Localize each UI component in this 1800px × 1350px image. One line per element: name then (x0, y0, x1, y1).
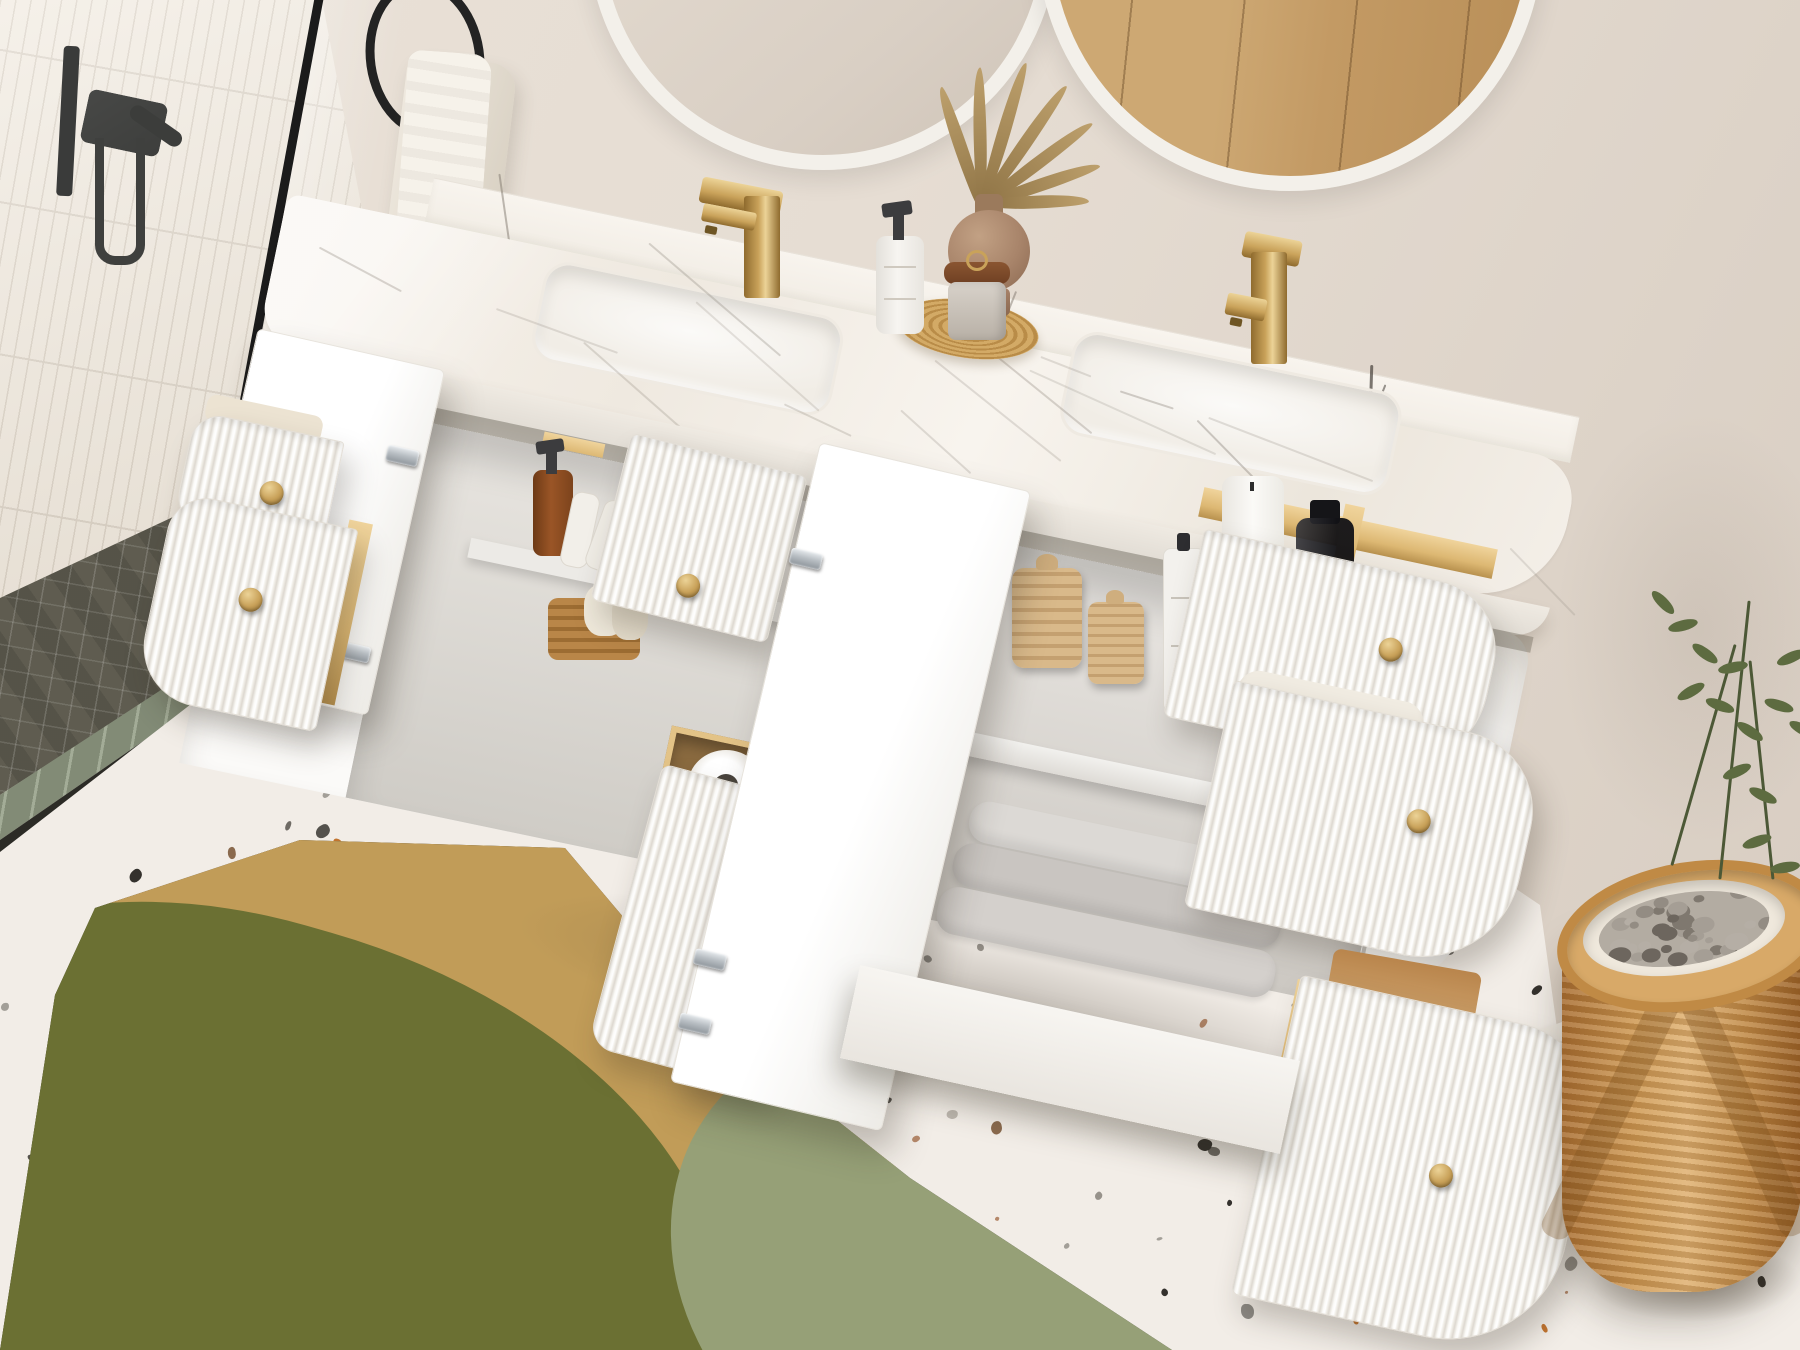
canister-knob (1106, 590, 1124, 604)
drawer-knob (237, 586, 265, 614)
tan-canister-small (1088, 602, 1144, 684)
pebble (1635, 904, 1655, 919)
drawer-knob (1427, 1161, 1456, 1190)
drawer-knob (1377, 635, 1406, 664)
drawer-knob (257, 479, 285, 507)
label-line (884, 298, 916, 300)
pump-top (1177, 533, 1190, 551)
terrazzo-chip (1156, 1236, 1163, 1242)
terrazzo-chip (1062, 1243, 1070, 1250)
drawer-knob (1405, 807, 1434, 836)
terrazzo-chip (1241, 1304, 1254, 1319)
pebble (1705, 937, 1714, 944)
hinge-icon (789, 547, 824, 570)
soap-dispenser (876, 236, 924, 334)
terrazzo-chip (911, 1134, 921, 1144)
terrazzo-chip (995, 1216, 1000, 1221)
drawer-knob (674, 572, 703, 601)
canister-knob (1036, 554, 1058, 570)
terrazzo-chip (1, 1002, 9, 1010)
pebble (1652, 896, 1669, 909)
shower-hose (95, 138, 145, 265)
pebble (1641, 947, 1662, 963)
tan-canister-large (1012, 568, 1082, 668)
pebble (1693, 894, 1704, 903)
terrazzo-chip (1530, 983, 1543, 996)
terrazzo-chip (1540, 1323, 1549, 1333)
bathroom-scene (0, 0, 1800, 1350)
terrazzo-chip (227, 846, 237, 859)
lid-gold-loop (966, 250, 988, 271)
terrazzo-chip (1093, 1190, 1104, 1201)
terrazzo-chip (127, 868, 145, 886)
marble-canister (948, 282, 1006, 340)
terrazzo-chip (1226, 1199, 1233, 1207)
marble-vein (319, 246, 402, 291)
hinge-icon (677, 1012, 712, 1035)
pebble (1660, 945, 1672, 954)
pebble (1630, 922, 1640, 930)
hinge-icon (385, 445, 420, 468)
terrazzo-chip (1159, 1288, 1169, 1298)
pebble (1744, 920, 1757, 930)
candle-wick (1250, 482, 1254, 491)
label-line (884, 266, 916, 268)
hinge-icon (693, 948, 728, 971)
